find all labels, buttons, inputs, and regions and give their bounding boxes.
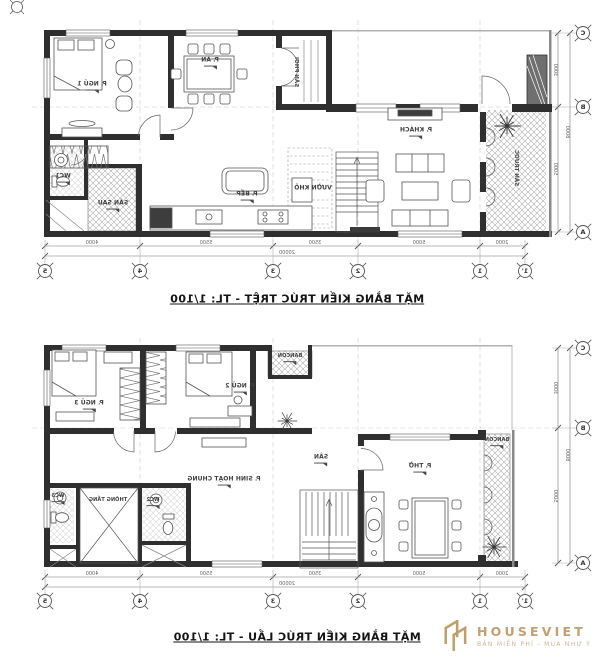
axis-label: 1' [522, 267, 529, 275]
dim-text: 5000 [552, 490, 558, 503]
axis-label: 5 [43, 267, 48, 275]
dim-text-total: 8000 [564, 449, 570, 462]
level-marker-icon [218, 484, 231, 489]
room-label-wc3: WC3 [52, 494, 65, 506]
room-label-vuon-kho: VƯỜN KHÔ [294, 186, 332, 193]
upper-doors [114, 431, 384, 470]
room-label-p-ngu-3: P. NGỦ 3 [74, 401, 104, 414]
axis-label: 1 [478, 597, 483, 605]
dim-text: 5500 [200, 571, 213, 577]
axis-label: 2 [356, 267, 361, 275]
room-label-bancon-top: BANCON [278, 354, 303, 366]
axis-label: B [581, 424, 586, 432]
room-label-p-sinh-hoat-chung: P. SINH HOẠT CHUNG [187, 477, 260, 490]
axis-label: 4 [138, 597, 143, 605]
axis-label: 1 [478, 267, 483, 275]
dim-text: 4000 [86, 571, 99, 577]
axis-label: B [581, 103, 586, 111]
level-marker-icon [147, 505, 160, 510]
room-label-p-bep: P. BẾP [236, 192, 257, 205]
room-label-p-ngu-2: P. NGỦ 2 [225, 384, 255, 397]
ground-floor-title: MẶT BẰNG KIẾN TRÚC TRỆT - TL: 1/100 [170, 293, 424, 306]
upper-windows [44, 345, 450, 567]
level-marker-icon [86, 89, 99, 94]
axis-label: C [581, 29, 586, 37]
level-marker-icon [107, 208, 120, 213]
upper-floor-plan [32, 338, 560, 572]
dim-text: 5000 [413, 571, 426, 577]
level-marker-icon [234, 391, 247, 396]
room-label-bancon-right: BANCON [485, 438, 510, 450]
family-sideboard [202, 438, 246, 447]
room-label-san: SÂN [314, 455, 328, 468]
dim-text: 5500 [200, 240, 213, 246]
room-label-p-tho: P. THỜ [409, 464, 432, 477]
axis-label: 2 [356, 597, 361, 605]
dim-text: 3500 [309, 240, 322, 246]
back-corner-area [46, 200, 84, 231]
level-marker-icon [83, 408, 96, 413]
kitchen-furniture [150, 168, 312, 230]
dim-text: 2000 [496, 571, 509, 577]
dim-text: 5000 [552, 163, 558, 176]
bancon-right-hatch [484, 434, 510, 564]
room-label-san-phoi: SÂN PHƠI [293, 57, 299, 87]
dim-text: 4000 [86, 240, 99, 246]
dim-text-total: 8000 [564, 126, 570, 139]
room-label-p-khach: P. KHÁCH [400, 128, 432, 141]
level-marker-icon [57, 181, 70, 186]
axis-label: A [580, 228, 585, 236]
dining-furniture [171, 44, 247, 104]
balcony-rail [512, 430, 515, 567]
dim-text: 5000 [413, 240, 426, 246]
room-label-thong-tang: THÔNG TẦNG [89, 498, 127, 504]
logo-name: HOUSEVIET [477, 624, 591, 639]
level-marker-icon [204, 65, 217, 70]
axis-label: C [581, 344, 586, 352]
room-label-p-ngu-1: P. NGỦ 1 [77, 82, 107, 95]
level-marker-icon [414, 471, 427, 476]
altar-furniture [399, 498, 461, 558]
san-phoi-slats [304, 40, 318, 102]
dim-text: 3500 [309, 571, 322, 577]
room-label-wc1: WC1 [55, 174, 71, 187]
level-marker-icon [315, 462, 328, 467]
level-marker-icon [491, 445, 504, 450]
axis-label: 3 [271, 267, 276, 275]
floor-plan-sheet: P. NGỦ 1 P. ĂN P. BẾP P. KHÁCH WC1 SÂN S… [0, 0, 600, 664]
upper-floor-title: MẶT BẰNG KIẾN TRÚC LẦU - TL: 1/100 [173, 631, 420, 644]
houseviet-logo: HOUSEVIET BẢN MIỄN PHÍ - MUA NHƯ Ý [441, 615, 599, 657]
room-label-san-sau: SÂN SAU [98, 201, 128, 214]
level-marker-icon [410, 135, 423, 140]
axis-label: A [580, 559, 585, 567]
dim-text: 3000 [552, 382, 558, 395]
axis-label: 3 [271, 597, 276, 605]
room-label-san-truoc: SÂN TRƯỚC [513, 150, 519, 186]
dim-text-total: 20000 [279, 250, 295, 256]
dim-text: 2000 [496, 240, 509, 246]
houseviet-logo-icon [441, 620, 471, 652]
axis-label: 5 [43, 597, 48, 605]
bedroom1-furniture [50, 38, 132, 168]
logo-tagline: BẢN MIỄN PHÍ - MUA NHƯ Ý [477, 641, 591, 648]
dim-text-total: 20000 [279, 581, 295, 587]
lavabo-counter [364, 492, 384, 562]
axis-label: 1' [522, 597, 529, 605]
level-marker-icon [241, 199, 254, 204]
room-label-wc2: WC2 [147, 498, 160, 510]
axis-label: 4 [138, 267, 143, 275]
plan-linework [0, 0, 600, 664]
room-label-p-an: P. ĂN [201, 58, 219, 71]
level-marker-icon [284, 361, 297, 366]
dim-text: 3000 [552, 64, 558, 77]
level-marker-icon [52, 501, 65, 506]
